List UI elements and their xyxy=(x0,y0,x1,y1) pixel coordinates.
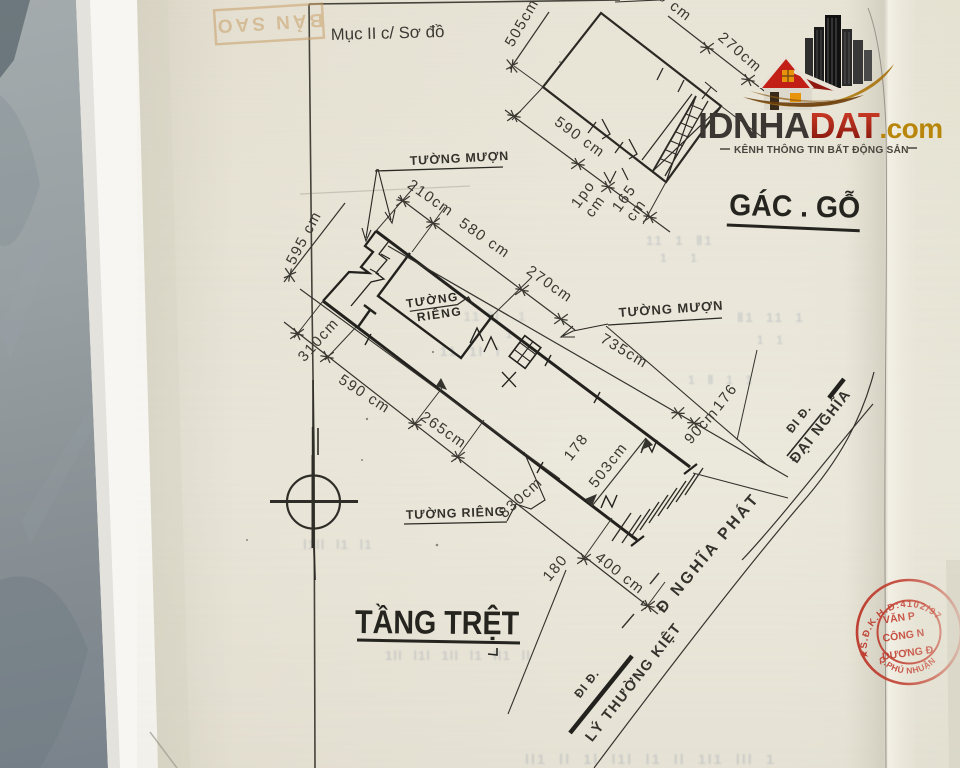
svg-text:KÊNH THÔNG TIN BẤT ĐỘNG SẢN: KÊNH THÔNG TIN BẤT ĐỘNG SẢN xyxy=(734,143,909,156)
svg-text:11⠀1⠀Ⅱ1⠀: 11⠀1⠀Ⅱ1⠀ xyxy=(646,233,725,248)
svg-text:Mục II c/ Sơ đồ: Mục II c/ Sơ đồ xyxy=(331,22,445,44)
svg-text:lⅠ1⠀Ⅰl⠀1Ⅰ⠀l1Ⅰ⠀Ⅰ1⠀lⅠ⠀1l1⠀ⅠlⅠ⠀1: lⅠ1⠀Ⅰl⠀1Ⅰ⠀l1Ⅰ⠀Ⅰ1⠀lⅠ⠀1l1⠀ⅠlⅠ⠀1 xyxy=(525,751,776,767)
svg-text:TẦNG TRỆT: TẦNG TRỆT xyxy=(355,603,519,641)
svg-text:1⠀Ⅱ⠀1⠀1: 1⠀Ⅱ⠀1⠀1 xyxy=(688,373,754,387)
svg-text:Ⅱ1⠀11⠀1: Ⅱ1⠀11⠀1 xyxy=(737,310,805,325)
svg-text:⠀1⠀1⠀: ⠀1⠀1⠀ xyxy=(746,333,796,347)
svg-text:GÁC . GỖ: GÁC . GỖ xyxy=(729,188,861,225)
svg-text:1Ⅰl⠀Ⅰ1l⠀1lⅠ⠀Ⅰ1⠀lⅠ1⠀Ⅰl: 1Ⅰl⠀Ⅰ1l⠀1lⅠ⠀Ⅰ1⠀lⅠ1⠀Ⅰl xyxy=(385,648,531,663)
svg-text:1⠀⠀1⠀: 1⠀⠀1⠀ xyxy=(660,251,710,265)
